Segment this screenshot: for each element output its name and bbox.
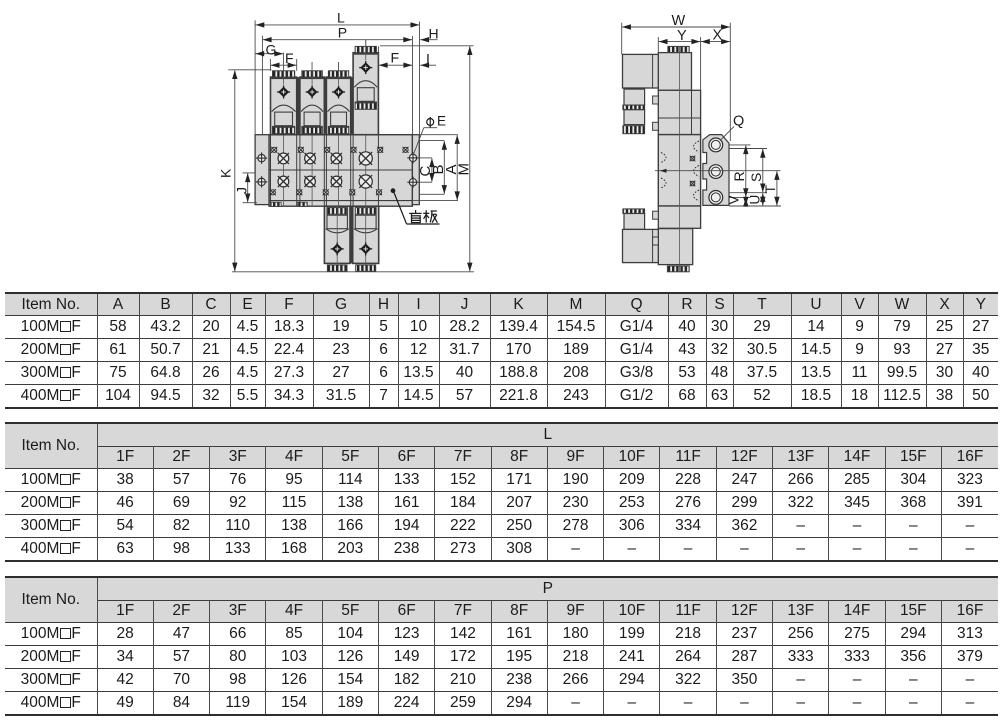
svg-text:K: K <box>218 168 234 178</box>
svg-text:F: F <box>285 50 294 66</box>
svg-text:W: W <box>672 13 686 29</box>
svg-text:X: X <box>713 28 723 44</box>
svg-text:Q: Q <box>733 114 744 130</box>
svg-text:U: U <box>748 195 763 205</box>
svg-text:P: P <box>338 25 347 41</box>
svg-text:Y: Y <box>677 28 687 44</box>
svg-text:E: E <box>437 114 446 129</box>
svg-text:H: H <box>429 26 439 42</box>
svg-text:I: I <box>426 51 430 67</box>
svg-text:R: R <box>731 171 747 181</box>
svg-text:T: T <box>762 185 778 194</box>
svg-text:L: L <box>337 10 345 26</box>
svg-text:J: J <box>234 187 250 194</box>
svg-text:G: G <box>266 42 277 58</box>
svg-text:V: V <box>727 195 742 204</box>
svg-text:F: F <box>391 50 400 66</box>
svg-text:S: S <box>748 173 764 182</box>
svg-text:M: M <box>456 163 473 176</box>
